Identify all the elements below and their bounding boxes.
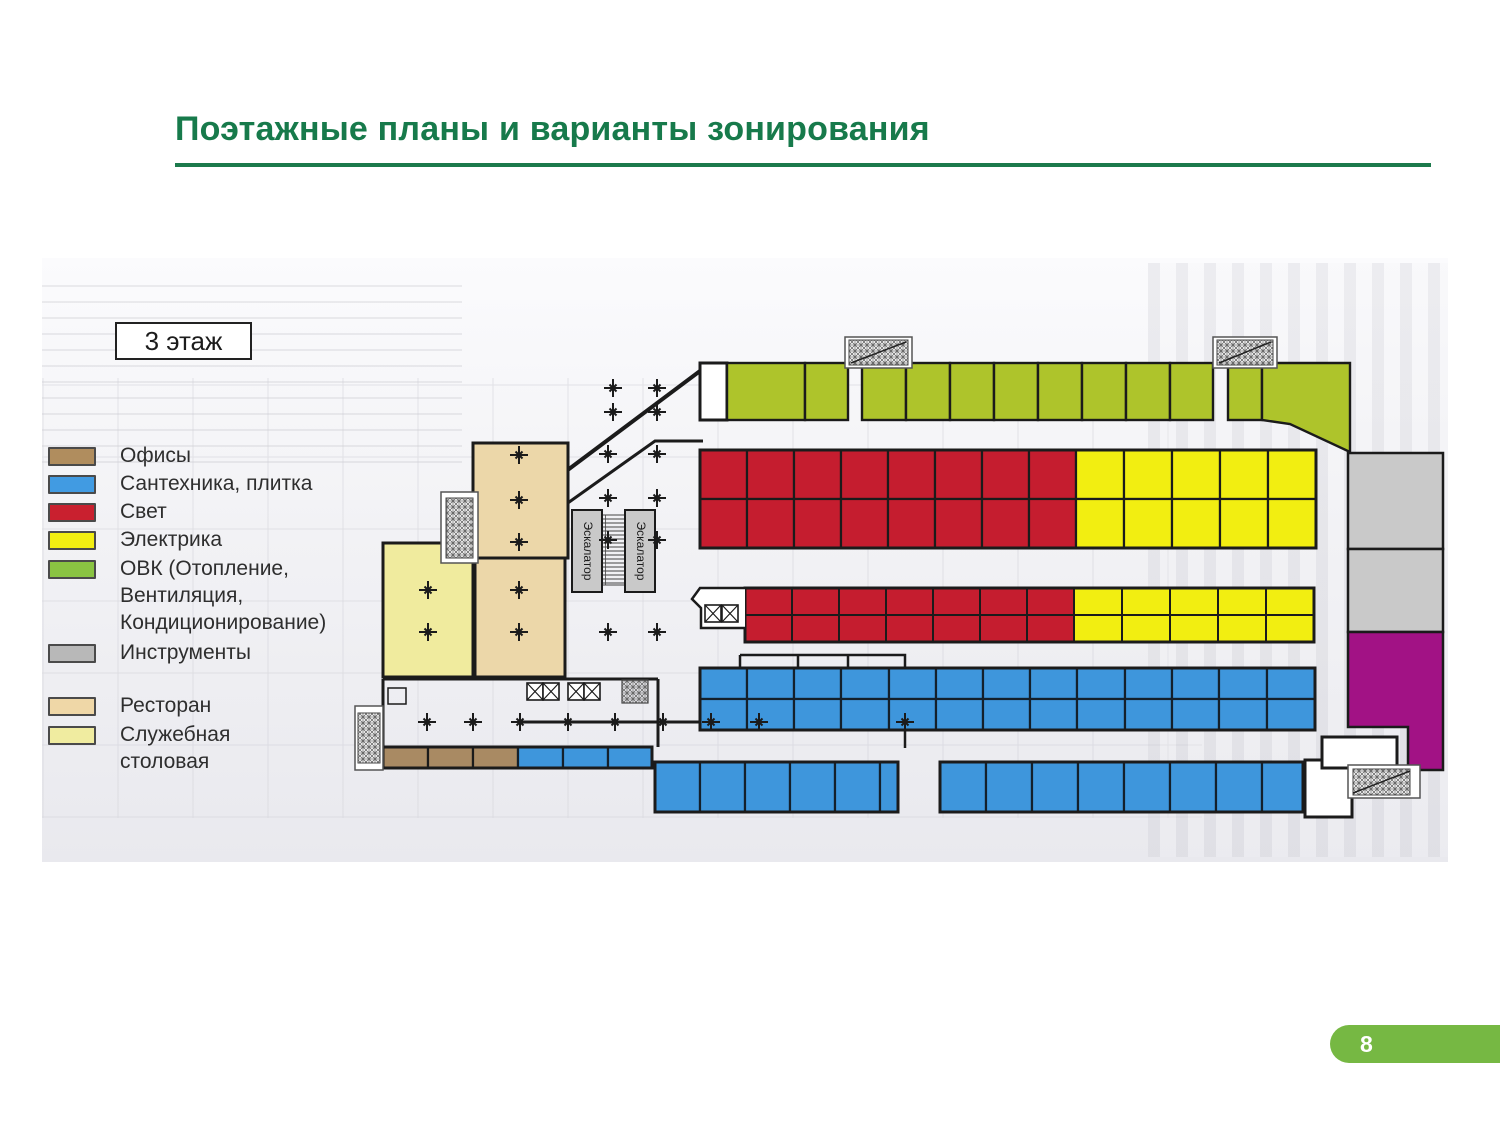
floor-label: 3 этаж <box>115 322 252 360</box>
page-number-badge: 8 <box>1330 1025 1500 1063</box>
restaurant-swatch-icon <box>48 697 96 716</box>
title-underline <box>175 163 1431 167</box>
escalator-block: Эскалатор Эскалатор <box>572 510 655 592</box>
stairwell-top-1 <box>845 337 912 368</box>
offices-swatch-icon <box>48 447 96 466</box>
light-swatch-icon <box>48 503 96 522</box>
legend-hvac-line2: Вентиляция, <box>120 584 243 608</box>
zone-tools <box>1348 453 1443 632</box>
legend-canteen-line2: столовая <box>120 750 209 774</box>
zone-light-band2 <box>745 588 1074 642</box>
escalator-label-2: Эскалатор <box>634 522 648 581</box>
floor-plan-image: Эскалатор Эскалатор 3 этаж Офисы <box>42 258 1448 862</box>
tools-swatch-icon <box>48 644 96 663</box>
legend-hvac-line3: Кондиционирование) <box>120 611 326 635</box>
zone-plumbing-band4 <box>655 762 1303 812</box>
bottom-right-rooms <box>1305 737 1420 817</box>
zone-light-band1 <box>700 450 1076 548</box>
hvac-swatch-icon <box>48 560 96 579</box>
stairwell-top-2 <box>1213 337 1277 368</box>
page-number: 8 <box>1360 1031 1373 1058</box>
stairwell-center <box>622 680 648 703</box>
zone-electric-band1 <box>1076 450 1316 548</box>
escalator-label-1: Эскалатор <box>581 522 595 581</box>
canteen-swatch-icon <box>48 726 96 745</box>
page-title: Поэтажные планы и варианты зонирования <box>175 110 930 149</box>
electric-swatch-icon <box>48 531 96 550</box>
zone-hvac-band <box>727 363 1350 452</box>
stairwell-left <box>441 492 478 563</box>
band2-service-notch <box>692 588 745 628</box>
zone-electric-band2 <box>1074 588 1314 642</box>
zone-plumbing-strip <box>518 747 652 768</box>
zone-plumbing-band3 <box>700 668 1315 730</box>
zone-restaurant <box>473 443 568 677</box>
zone-offices-strip <box>383 747 518 768</box>
plumbing-swatch-icon <box>48 475 96 494</box>
stairwell-bottom-left <box>355 706 383 770</box>
elevator-bank <box>527 683 600 700</box>
